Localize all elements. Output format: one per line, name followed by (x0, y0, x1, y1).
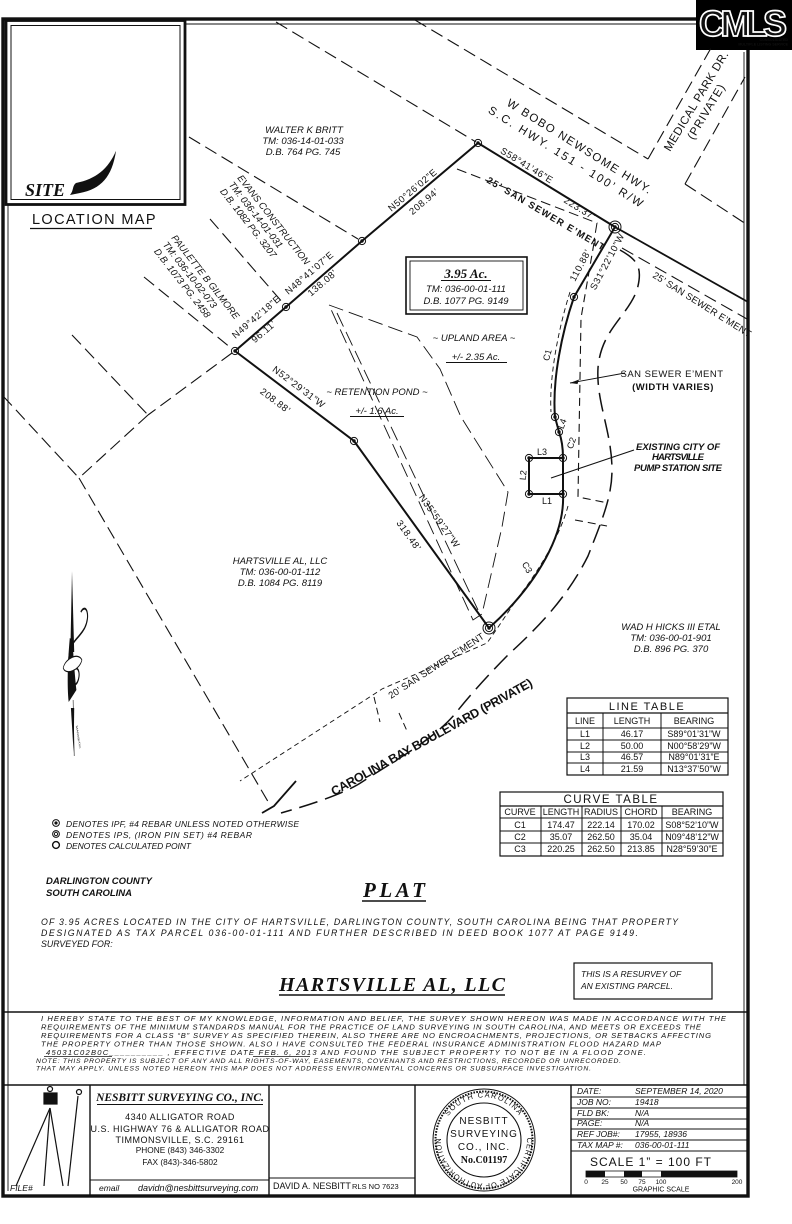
svg-text:SOUTH CAROLINA: SOUTH CAROLINA (46, 888, 132, 899)
svg-text:OF 3.95 ACRES LOCATED IN: OF 3.95 ACRES LOCATED IN THE CITY OF HAR… (41, 917, 679, 927)
svg-text:PUMP STATION SITE: PUMP STATION SITE (634, 463, 723, 474)
svg-text:THIS IS A RESURVEY OF: THIS IS A RESURVEY OF (581, 969, 682, 979)
svg-text:FILE#: FILE# (10, 1183, 33, 1193)
svg-text:email: email (99, 1183, 120, 1193)
svg-text:21.59: 21.59 (621, 764, 644, 774)
svg-text:DENOTES IPF, #4 REBAR UNLE: DENOTES IPF, #4 REBAR UNLESS NOTED OTHER… (66, 819, 299, 829)
svg-text:THAT MAY APPLY. UNLESS NOT: THAT MAY APPLY. UNLESS NOTED HEREON THIS… (36, 1066, 591, 1073)
svg-text:WAD H HICKS III ETAL: WAD H HICKS III ETAL (621, 622, 720, 633)
svg-text:SITE: SITE (25, 180, 65, 200)
svg-text:N28°59’30”E: N28°59’30”E (666, 844, 717, 854)
svg-text:35.04: 35.04 (630, 832, 653, 842)
svg-text:~ RETENTION POND ~: ~ RETENTION POND ~ (326, 387, 428, 398)
svg-text:100: 100 (656, 1179, 667, 1186)
svg-text:4340 ALLIGATOR ROAD: 4340 ALLIGATOR ROAD (125, 1112, 235, 1122)
svg-text:BEARING: BEARING (674, 716, 715, 726)
svg-text:U.S. HIGHWAY 76 & ALLIGATO: U.S. HIGHWAY 76 & ALLIGATOR ROAD (90, 1124, 269, 1134)
svg-text:N/A: N/A (635, 1108, 650, 1118)
svg-text:036-00-01-111: 036-00-01-111 (635, 1140, 690, 1150)
svg-text:174.47: 174.47 (547, 820, 575, 830)
svg-text:N13°37’50”W: N13°37’50”W (667, 764, 721, 774)
svg-text:35.07: 35.07 (550, 832, 573, 842)
svg-text:TM: 036-00-01-901: TM: 036-00-01-901 (630, 633, 711, 644)
svg-text:D.B. 896 PG. 370: D.B. 896 PG. 370 (634, 644, 709, 655)
svg-text:PAGE:: PAGE: (577, 1118, 603, 1128)
svg-text:SAN SEWER E’MENT: SAN SEWER E’MENT (620, 369, 723, 380)
svg-text:N89°01’31”E: N89°01’31”E (668, 752, 719, 762)
svg-text:(WIDTH VARIES): (WIDTH VARIES) (632, 382, 714, 393)
svg-text:220.25: 220.25 (547, 844, 575, 854)
svg-text:SCALE 1” = 100 FT: SCALE 1” = 100 FT (590, 1155, 712, 1169)
svg-text:262.50: 262.50 (587, 844, 615, 854)
svg-text:JOB NO:: JOB NO: (576, 1097, 612, 1107)
svg-text:MULTIPLE LISTING SERVICE: MULTIPLE LISTING SERVICE (738, 43, 788, 47)
svg-text:SURVEYING: SURVEYING (450, 1129, 518, 1140)
svg-text:LENGTH: LENGTH (543, 807, 580, 817)
svg-text:C1: C1 (514, 820, 526, 830)
svg-text:L4: L4 (580, 764, 590, 774)
svg-text:NESBITT SURVEYING CO., INC.: NESBITT SURVEYING CO., INC. (95, 1092, 264, 1104)
svg-text:200: 200 (732, 1179, 743, 1186)
svg-text:LOCATION MAP: LOCATION MAP (32, 212, 158, 228)
svg-text:DENOTES CALCULATED POINT: DENOTES CALCULATED POINT (66, 841, 192, 851)
svg-text:CO., INC.: CO., INC. (458, 1142, 510, 1153)
svg-text:DENOTES IPS, (IRON PIN SET: DENOTES IPS, (IRON PIN SET) #4 REBAR (66, 830, 252, 840)
svg-text:CHORD: CHORD (625, 807, 658, 817)
svg-text:SEPTEMBER 14, 2020: SEPTEMBER 14, 2020 (635, 1086, 723, 1096)
svg-text:0: 0 (584, 1179, 588, 1186)
svg-text:46.57: 46.57 (621, 752, 644, 762)
svg-text:D.B. 764 PG. 745: D.B. 764 PG. 745 (266, 147, 341, 158)
svg-text:N09°48’12”W: N09°48’12”W (665, 832, 719, 842)
svg-text:TM: 036-00-01-111: TM: 036-00-01-111 (426, 284, 506, 295)
svg-text:L2: L2 (518, 470, 529, 481)
svg-text:L3: L3 (537, 447, 547, 457)
svg-text:BEARING: BEARING (672, 807, 713, 817)
svg-text:GRAPHIC SCALE: GRAPHIC SCALE (633, 1187, 690, 1194)
svg-text:C3: C3 (514, 844, 526, 854)
svg-text:L1: L1 (580, 729, 590, 739)
svg-text:D.B. 1077 PG. 9149: D.B. 1077 PG. 9149 (423, 296, 509, 307)
svg-text:17955, 18936: 17955, 18936 (635, 1129, 687, 1139)
svg-text:N00°58’29”W: N00°58’29”W (667, 741, 721, 751)
svg-text:AN EXISTING PARCEL.: AN EXISTING PARCEL. (580, 981, 673, 991)
svg-text:NOTE: THIS PROPERTY IS SUB: NOTE: THIS PROPERTY IS SUBJECT OF ANY AN… (36, 1058, 621, 1065)
svg-text:45031C02B0C__________ , EFFE: 45031C02B0C__________ , EFFECTIVE DATE F… (46, 1048, 646, 1057)
svg-text:19418: 19418 (635, 1097, 659, 1107)
svg-text:50: 50 (620, 1179, 628, 1186)
svg-text:S89°01’31”W: S89°01’31”W (667, 729, 721, 739)
svg-text:LENGTH: LENGTH (614, 716, 651, 726)
svg-text:50.00: 50.00 (621, 741, 644, 751)
svg-text:222.14: 222.14 (587, 820, 615, 830)
svg-text:D.B. 1084 PG. 8119: D.B. 1084 PG. 8119 (238, 578, 323, 589)
svg-text:3.95 Ac.: 3.95 Ac. (443, 266, 487, 281)
svg-text:TIMMONSVILLE, S.C. 29161: TIMMONSVILLE, S.C. 29161 (115, 1135, 244, 1145)
svg-text:213.85: 213.85 (627, 844, 655, 854)
svg-text:FLD BK:: FLD BK: (577, 1108, 610, 1118)
svg-text:HARTSVILLE: HARTSVILLE (652, 452, 705, 463)
svg-text:SURVEYED FOR:: SURVEYED FOR: (41, 939, 113, 949)
svg-text:TAX MAP #:: TAX MAP #: (577, 1140, 623, 1150)
svg-text:46.17: 46.17 (621, 729, 644, 739)
svg-text:262.50: 262.50 (587, 832, 615, 842)
svg-text:25: 25 (601, 1179, 609, 1186)
svg-text:davidn@nesbittsurveying.com: davidn@nesbittsurveying.com (138, 1183, 259, 1193)
svg-text:No.C01197: No.C01197 (461, 1155, 507, 1166)
svg-text:75: 75 (638, 1179, 646, 1186)
svg-text:LINE: LINE (575, 716, 595, 726)
svg-text:L1: L1 (542, 496, 552, 506)
svg-text:PHONE (843) 346-3302: PHONE (843) 346-3302 (136, 1145, 225, 1155)
svg-text:N/A: N/A (635, 1118, 650, 1128)
svg-text:+/- 1.6 Ac.: +/- 1.6 Ac. (355, 406, 398, 417)
svg-text:DATE:: DATE: (577, 1086, 602, 1096)
svg-text:CURVE TABLE: CURVE TABLE (563, 794, 658, 806)
svg-text:+/- 2.35 Ac.: +/- 2.35 Ac. (452, 352, 501, 363)
svg-text:TM: 036-00-01-112: TM: 036-00-01-112 (240, 567, 321, 578)
svg-text:RADIUS: RADIUS (584, 807, 618, 817)
svg-text:RLS NO 7623: RLS NO 7623 (352, 1182, 399, 1191)
svg-text:170.02: 170.02 (627, 820, 655, 830)
svg-text:L2: L2 (580, 741, 590, 751)
svg-text:TM: 036-14-01-033: TM: 036-14-01-033 (262, 136, 344, 147)
svg-text:WALTER K BRITT: WALTER K BRITT (265, 125, 344, 136)
svg-text:~ UPLAND AREA ~: ~ UPLAND AREA ~ (433, 333, 516, 344)
svg-text:DAVID A. NESBITT: DAVID A. NESBITT (273, 1181, 351, 1191)
svg-text:FAX (843)-346-5802: FAX (843)-346-5802 (142, 1157, 218, 1167)
svg-text:S08°52’10”W: S08°52’10”W (665, 820, 719, 830)
svg-text:DARLINGTON COUNTY: DARLINGTON COUNTY (46, 876, 154, 887)
svg-text:L3: L3 (580, 752, 590, 762)
svg-text:HARTSVILLE AL, LLC: HARTSVILLE AL, LLC (233, 556, 328, 567)
svg-text:CONSOLIDATED: CONSOLIDATED (760, 38, 789, 42)
svg-text:NESBITT: NESBITT (459, 1116, 508, 1127)
svg-text:HARTSVILLE AL, LLC: HARTSVILLE AL, LLC (278, 974, 506, 996)
svg-text:C2: C2 (514, 832, 526, 842)
svg-text:REF JOB#:: REF JOB#: (577, 1129, 620, 1139)
svg-text:CURVE: CURVE (504, 807, 535, 817)
svg-text:LINE TABLE: LINE TABLE (609, 701, 685, 713)
